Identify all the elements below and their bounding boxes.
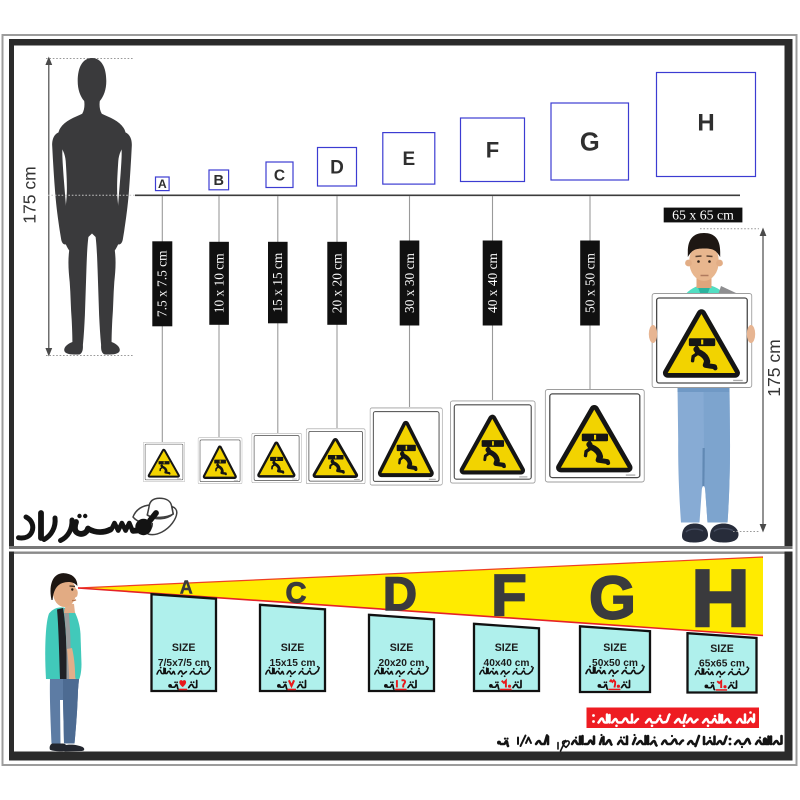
svg-text:H: H xyxy=(691,554,750,644)
svg-text:7.5 x 7.5 cm: 7.5 x 7.5 cm xyxy=(155,250,170,317)
svg-text:D: D xyxy=(383,567,417,620)
svg-text:F: F xyxy=(486,138,499,163)
svg-text:50 x 50 cm: 50 x 50 cm xyxy=(582,252,597,312)
svg-text:B: B xyxy=(214,173,224,189)
svg-text:15x15 cm: 15x15 cm xyxy=(270,658,316,669)
svg-text:G: G xyxy=(589,565,636,632)
svg-text:175 cm: 175 cm xyxy=(764,339,784,396)
svg-text:SIZE: SIZE xyxy=(172,642,196,654)
svg-text:30 x 30 cm: 30 x 30 cm xyxy=(402,252,417,312)
svg-text:40x40 cm: 40x40 cm xyxy=(484,658,530,669)
svg-text:175 cm: 175 cm xyxy=(20,166,40,223)
svg-text:7/5x7/5 cm: 7/5x7/5 cm xyxy=(158,658,210,669)
svg-text:50x50 cm: 50x50 cm xyxy=(592,658,638,669)
svg-text:20 x 20 cm: 20 x 20 cm xyxy=(330,253,345,313)
svg-text:A: A xyxy=(180,578,193,598)
svg-text:65 x 65 cm: 65 x 65 cm xyxy=(672,208,734,223)
svg-text:F: F xyxy=(491,563,526,628)
svg-text:10 x 10 cm: 10 x 10 cm xyxy=(212,253,227,313)
svg-text:E: E xyxy=(402,149,415,170)
svg-text:A: A xyxy=(158,177,167,191)
svg-text:20x20 cm: 20x20 cm xyxy=(379,658,425,669)
svg-text:SIZE: SIZE xyxy=(390,642,414,654)
svg-text:SIZE: SIZE xyxy=(710,643,734,655)
svg-text:D: D xyxy=(330,158,344,179)
svg-text:C: C xyxy=(286,577,307,609)
svg-text:65x65 cm: 65x65 cm xyxy=(699,659,745,670)
svg-text:C: C xyxy=(274,167,285,184)
svg-text:SIZE: SIZE xyxy=(281,642,305,654)
svg-text:H: H xyxy=(697,110,714,137)
svg-text:G: G xyxy=(580,129,600,157)
svg-text:40 x 40 cm: 40 x 40 cm xyxy=(485,252,500,312)
svg-text:SIZE: SIZE xyxy=(495,642,519,654)
svg-text:SIZE: SIZE xyxy=(603,642,627,654)
svg-text:15 x 15 cm: 15 x 15 cm xyxy=(270,252,285,312)
